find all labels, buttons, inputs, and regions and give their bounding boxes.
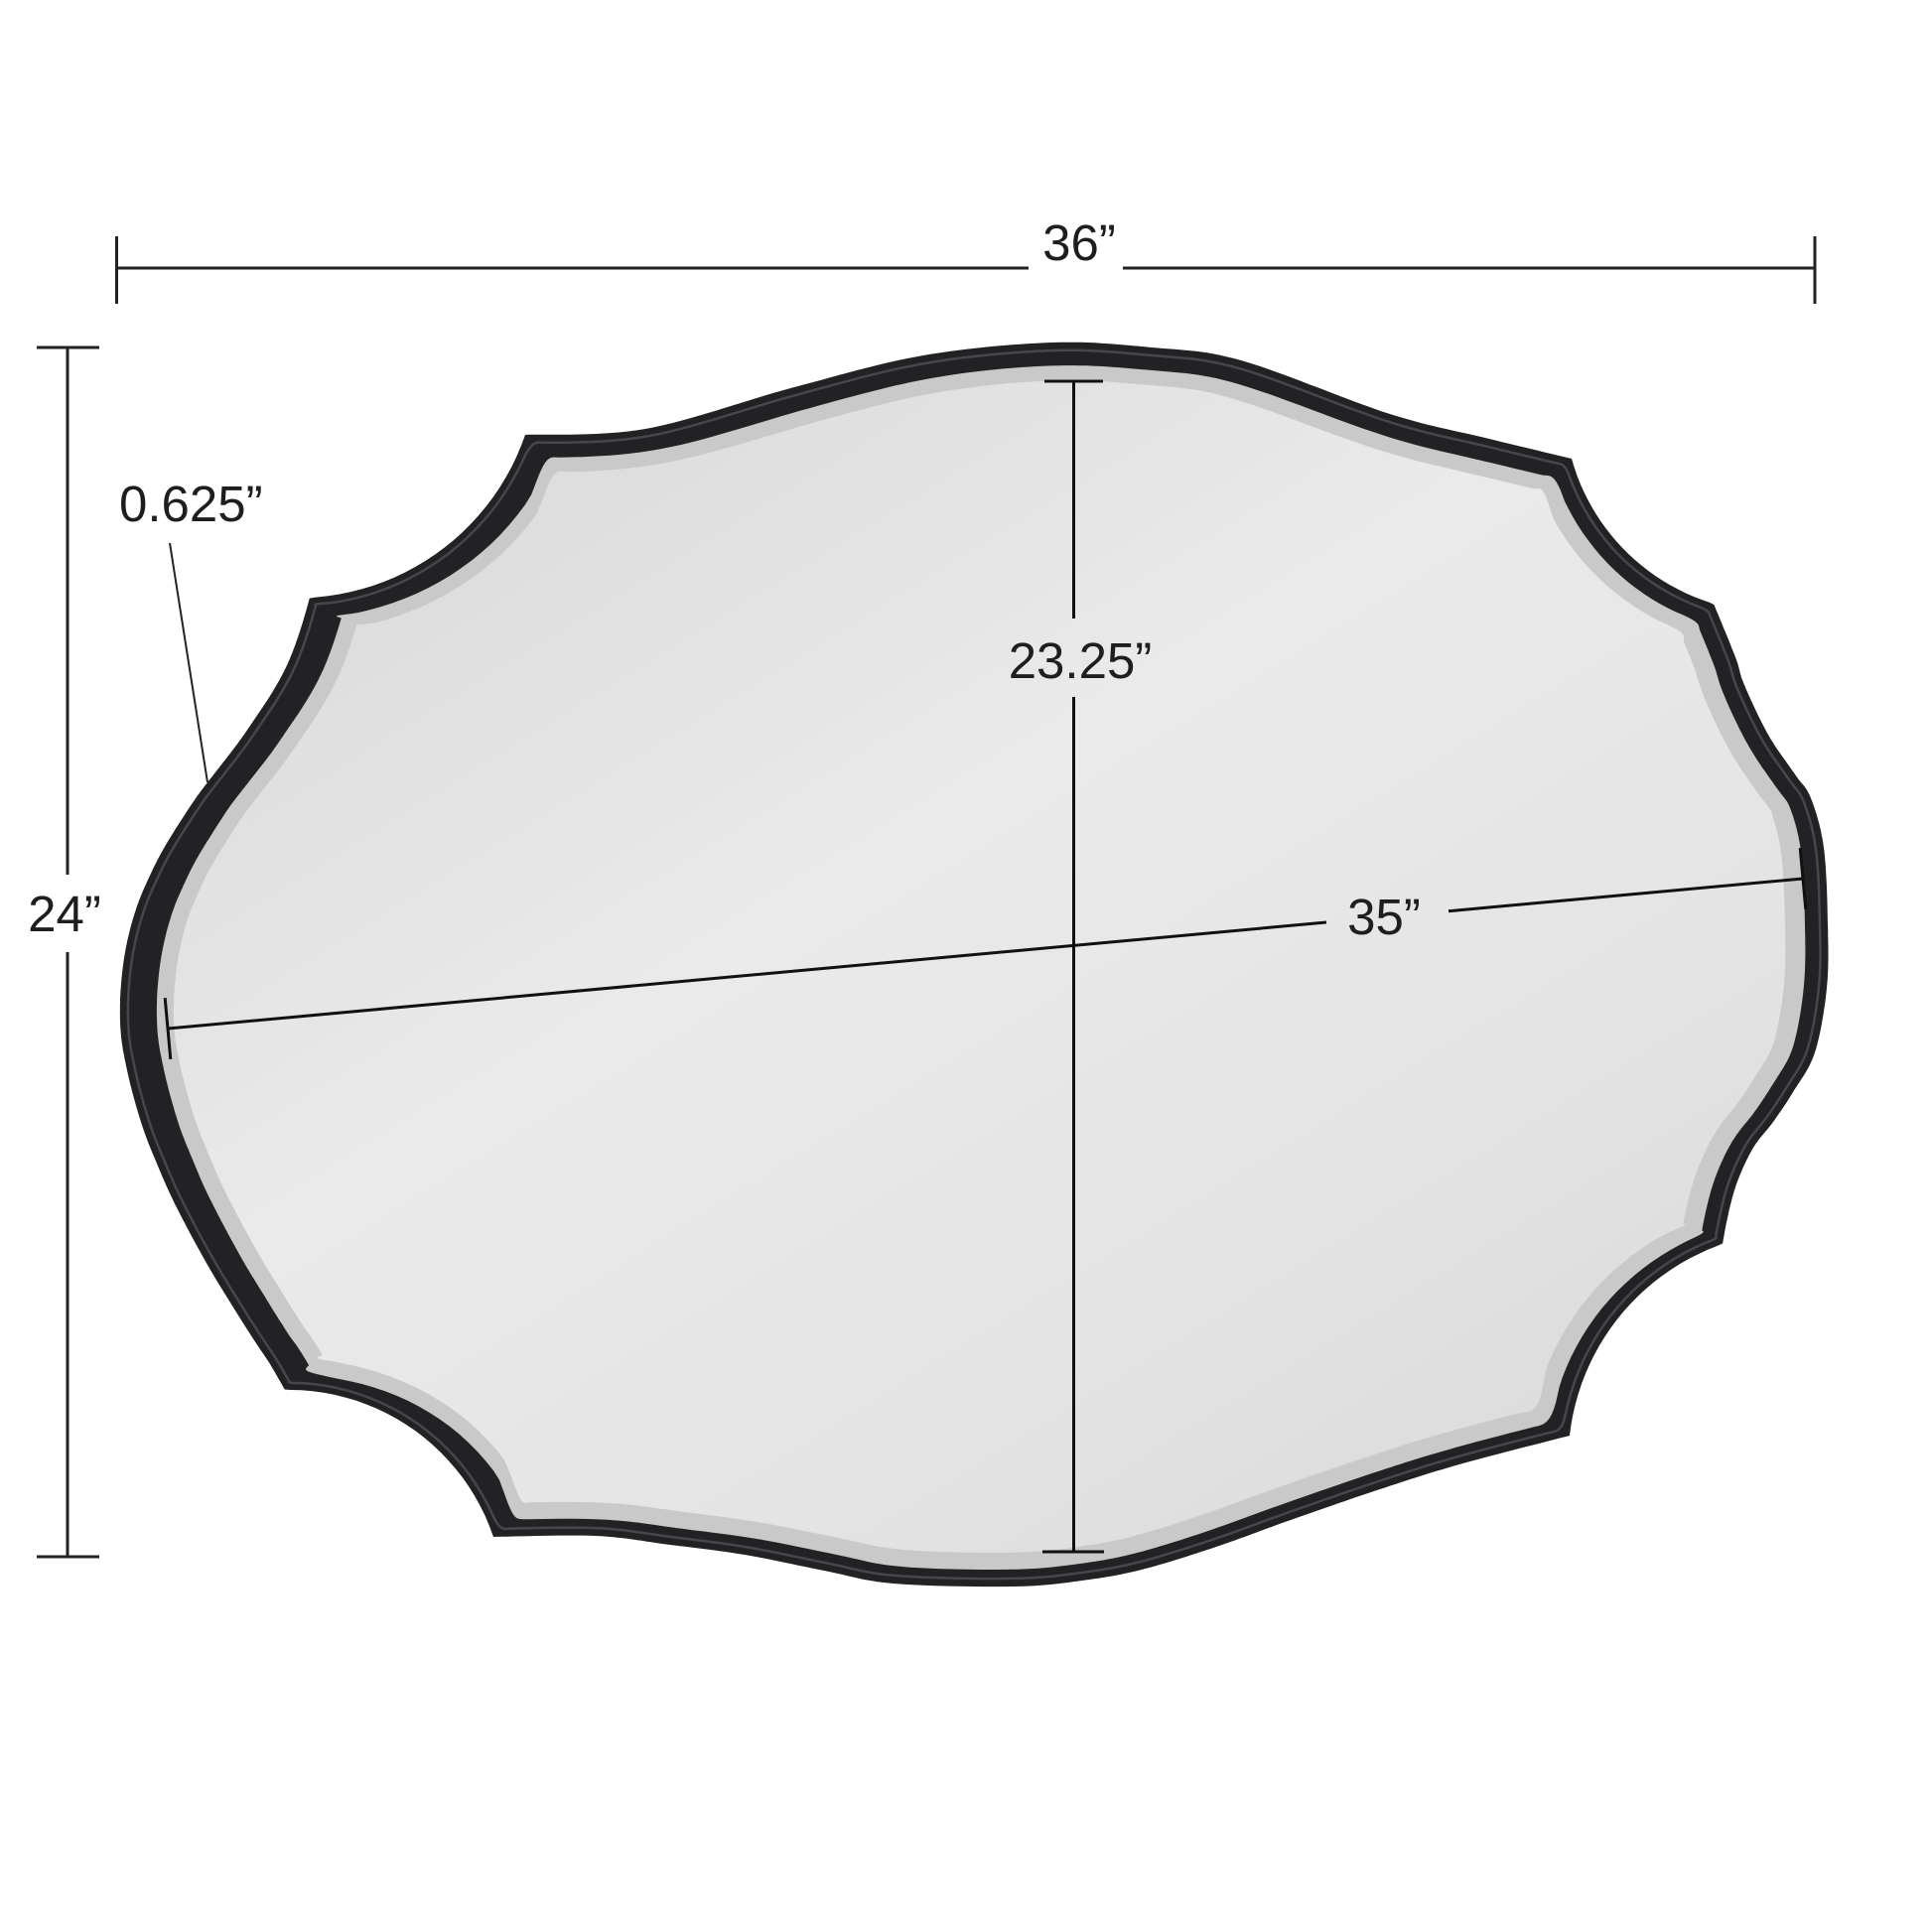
svg-text:35”: 35” xyxy=(1347,889,1421,945)
svg-text:24”: 24” xyxy=(28,886,101,942)
svg-text:36”: 36” xyxy=(1042,214,1116,271)
svg-text:23.25”: 23.25” xyxy=(1009,632,1153,689)
svg-text:0.625”: 0.625” xyxy=(119,476,263,532)
